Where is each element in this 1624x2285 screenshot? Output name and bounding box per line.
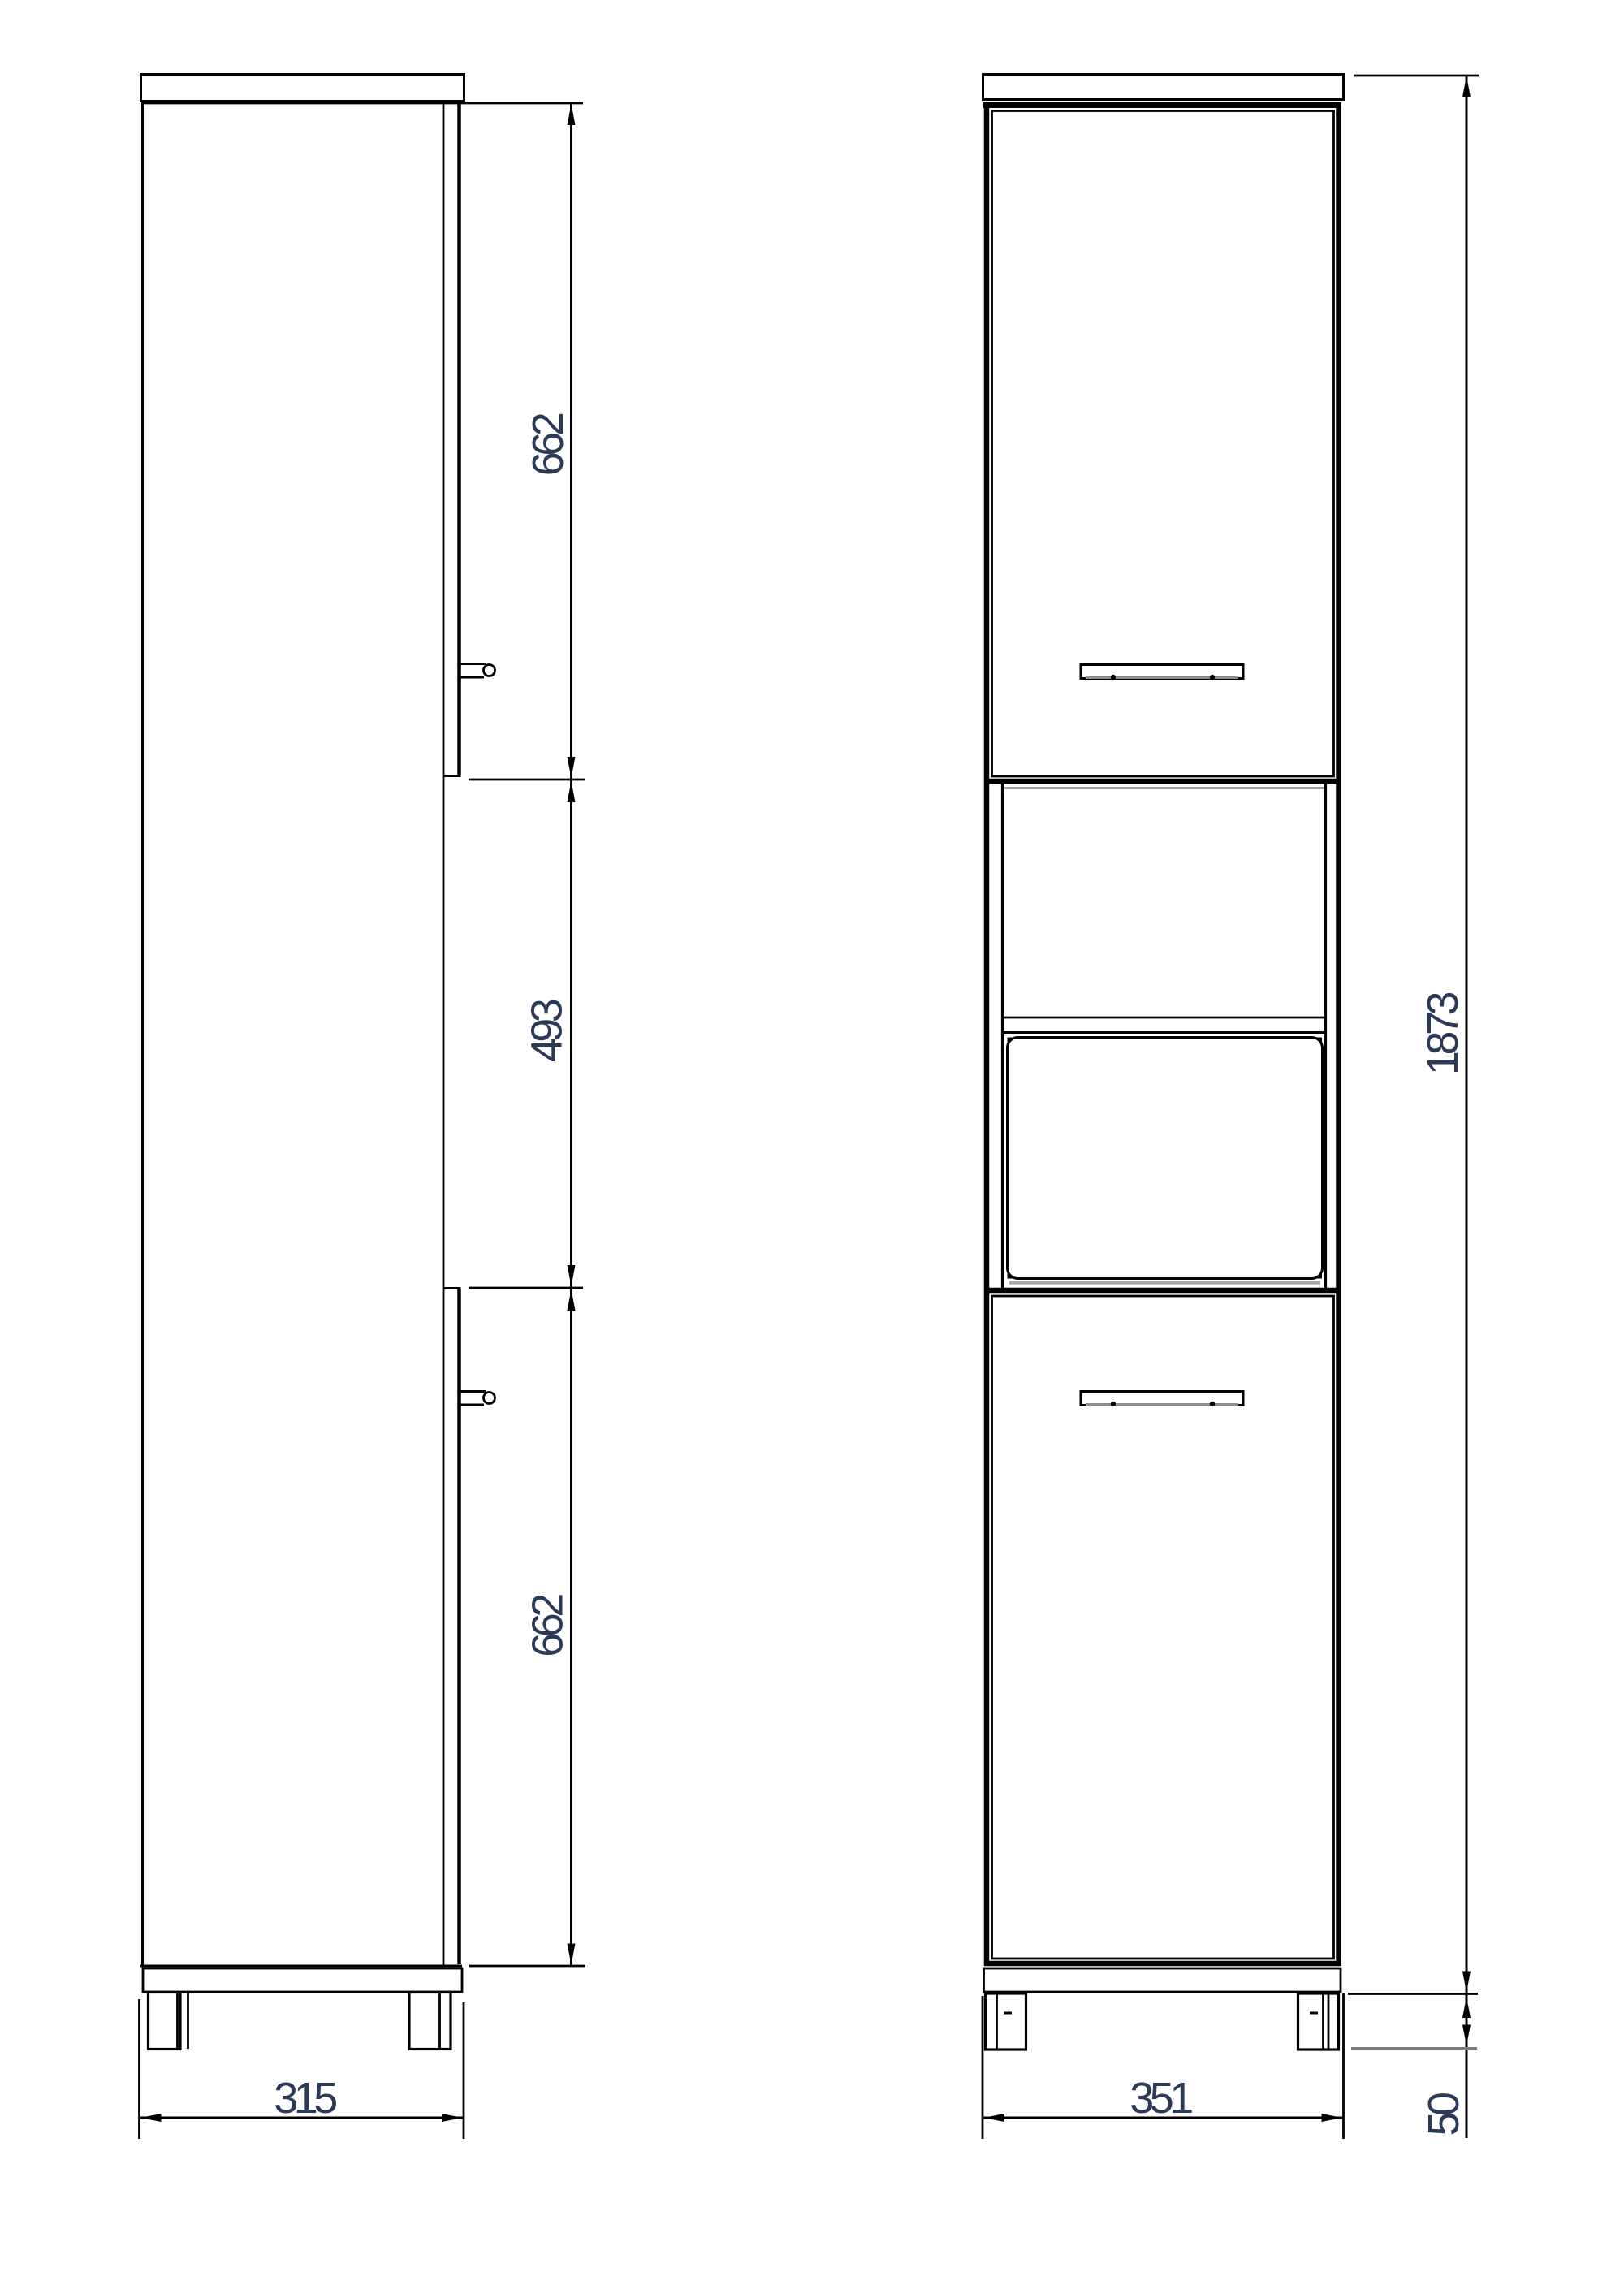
svg-text:662: 662: [524, 413, 572, 476]
svg-text:50: 50: [1419, 2093, 1468, 2136]
svg-text:351: 351: [1129, 2074, 1192, 2123]
svg-text:662: 662: [523, 1595, 572, 1657]
svg-text:1873: 1873: [1419, 992, 1467, 1075]
svg-text:493: 493: [522, 1000, 571, 1062]
svg-text:315: 315: [274, 2074, 336, 2123]
